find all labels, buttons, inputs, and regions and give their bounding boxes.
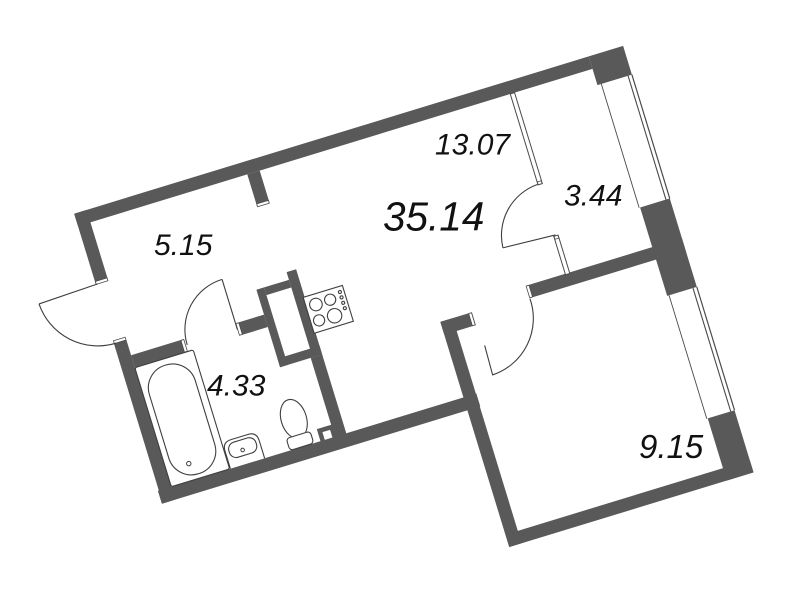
svg-text:9.15: 9.15	[639, 428, 704, 465]
svg-text:4.33: 4.33	[207, 370, 266, 403]
svg-text:35.14: 35.14	[383, 194, 484, 240]
svg-text:5.15: 5.15	[154, 229, 213, 262]
svg-text:13.07: 13.07	[435, 129, 511, 162]
svg-text:3.44: 3.44	[564, 180, 622, 213]
